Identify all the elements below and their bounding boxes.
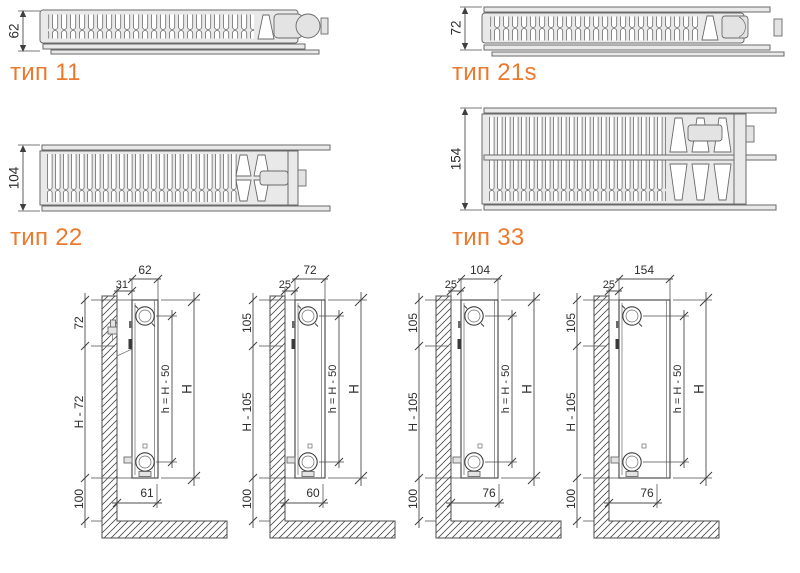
wall-bracket — [292, 339, 296, 349]
connection-span-dim: h = H - 50 — [500, 365, 512, 414]
type22-depth-label: 104 — [7, 166, 22, 189]
type33-depth-label: 154 — [449, 147, 464, 170]
panel-span-dim: H - 105 — [564, 392, 578, 432]
bottom-valve — [453, 457, 461, 463]
type22-depth-dimension: 104 — [7, 145, 40, 211]
type11-depth-label: 62 — [7, 23, 22, 38]
panel-span-dim: H - 72 — [72, 395, 86, 428]
type33-depth-dimension: 154 — [449, 108, 482, 210]
bottom-valve — [124, 457, 132, 463]
type21s-cross-section: 72 — [448, 4, 800, 62]
bottom-offset-dim: 76 — [640, 486, 654, 500]
type33-pipe-connection — [746, 126, 754, 142]
wall-and-floor — [102, 296, 227, 538]
type11-depth-dimension: 62 — [7, 10, 40, 52]
floor-clearance-dim: 100 — [406, 489, 420, 509]
type33-drawing — [482, 108, 776, 210]
type33-cross-section: 154 — [448, 106, 800, 214]
bottom-valve — [611, 457, 619, 463]
wall-valve — [108, 327, 117, 334]
type11-pipe-connection — [296, 14, 320, 38]
height-dim: H — [692, 384, 707, 394]
bottom-offset-dim: 76 — [482, 486, 496, 500]
top-offset-dim: 72 — [72, 316, 86, 330]
type22-pipe-connection — [298, 170, 306, 186]
height-dim: H — [520, 384, 535, 394]
radiator-side-view — [453, 300, 498, 478]
depth-dim: 154 — [634, 263, 654, 277]
wall-and-floor — [270, 296, 395, 538]
type33-label: тип 33 — [452, 226, 525, 250]
type21s-label: тип 21s — [452, 61, 537, 85]
radiator-side-view — [611, 300, 670, 478]
type21s-convector-slots — [490, 17, 698, 41]
type21s-depth-label: 72 — [449, 20, 464, 35]
type11-convector-slots — [48, 15, 254, 39]
top-offset-dim: 105 — [564, 313, 578, 333]
type21s-pipe-connection — [774, 19, 782, 36]
type22-convector-fins — [46, 154, 238, 202]
type22-drawing — [40, 145, 330, 211]
type11-label: тип 11 — [10, 61, 81, 85]
type11-cross-section: 62 — [6, 6, 346, 58]
height-dim: H — [347, 384, 362, 394]
top-offset-dim: 105 — [406, 313, 420, 333]
type11-drawing — [40, 10, 328, 54]
depth-dim: 62 — [138, 263, 152, 277]
bottom-valve — [287, 457, 295, 463]
wall-bracket — [616, 339, 620, 349]
type22-label: тип 22 — [10, 226, 83, 250]
wall-gap-dim: 25 — [445, 279, 457, 291]
bottom-offset-dim: 60 — [306, 486, 320, 500]
radiator-side-view — [287, 300, 325, 478]
type21s-depth-dimension: 72 — [449, 7, 482, 50]
floor-clearance-dim: 100 — [564, 489, 578, 509]
floor-clearance-dim: 100 — [240, 489, 254, 509]
connection-span-dim: h = H - 50 — [327, 365, 339, 414]
depth-dim: 104 — [470, 263, 490, 277]
mounting-diagram-type33: 154 25 105 H - 105 100 h = H - 50 H 76 — [552, 260, 722, 552]
wall-gap-dim: 25 — [279, 279, 291, 291]
panel-span-dim: H - 105 — [406, 392, 420, 432]
connection-span-dim: h = H - 50 — [160, 365, 172, 414]
height-dim: H — [180, 384, 195, 394]
mounting-diagram-type21s: 72 25 105 H - 105 100 h = H - 50 H 60 — [228, 260, 398, 552]
type21s-drawing — [482, 7, 784, 56]
radiator-types-spec-sheet: 62 тип 11 72 — [0, 0, 800, 573]
wall-gap-dim: 31 — [116, 279, 128, 291]
mounting-diagram-type22: 104 25 105 H - 105 100 h = H - 50 H 76 — [394, 260, 564, 552]
bottom-offset-dim: 61 — [140, 486, 154, 500]
type22-cross-section: 104 — [6, 142, 346, 216]
connection-span-dim: h = H - 50 — [672, 365, 684, 414]
depth-dim: 72 — [303, 263, 317, 277]
wall-bracket — [129, 339, 133, 349]
wall-gap-dim: 25 — [603, 279, 615, 291]
wall-bracket — [458, 339, 462, 349]
floor-clearance-dim: 100 — [72, 489, 86, 509]
panel-span-dim: H - 105 — [240, 392, 254, 432]
top-offset-dim: 105 — [240, 313, 254, 333]
mounting-diagram-type11: 62 31 72 H - 72 100 h = H - 50 H 61 — [60, 260, 230, 552]
